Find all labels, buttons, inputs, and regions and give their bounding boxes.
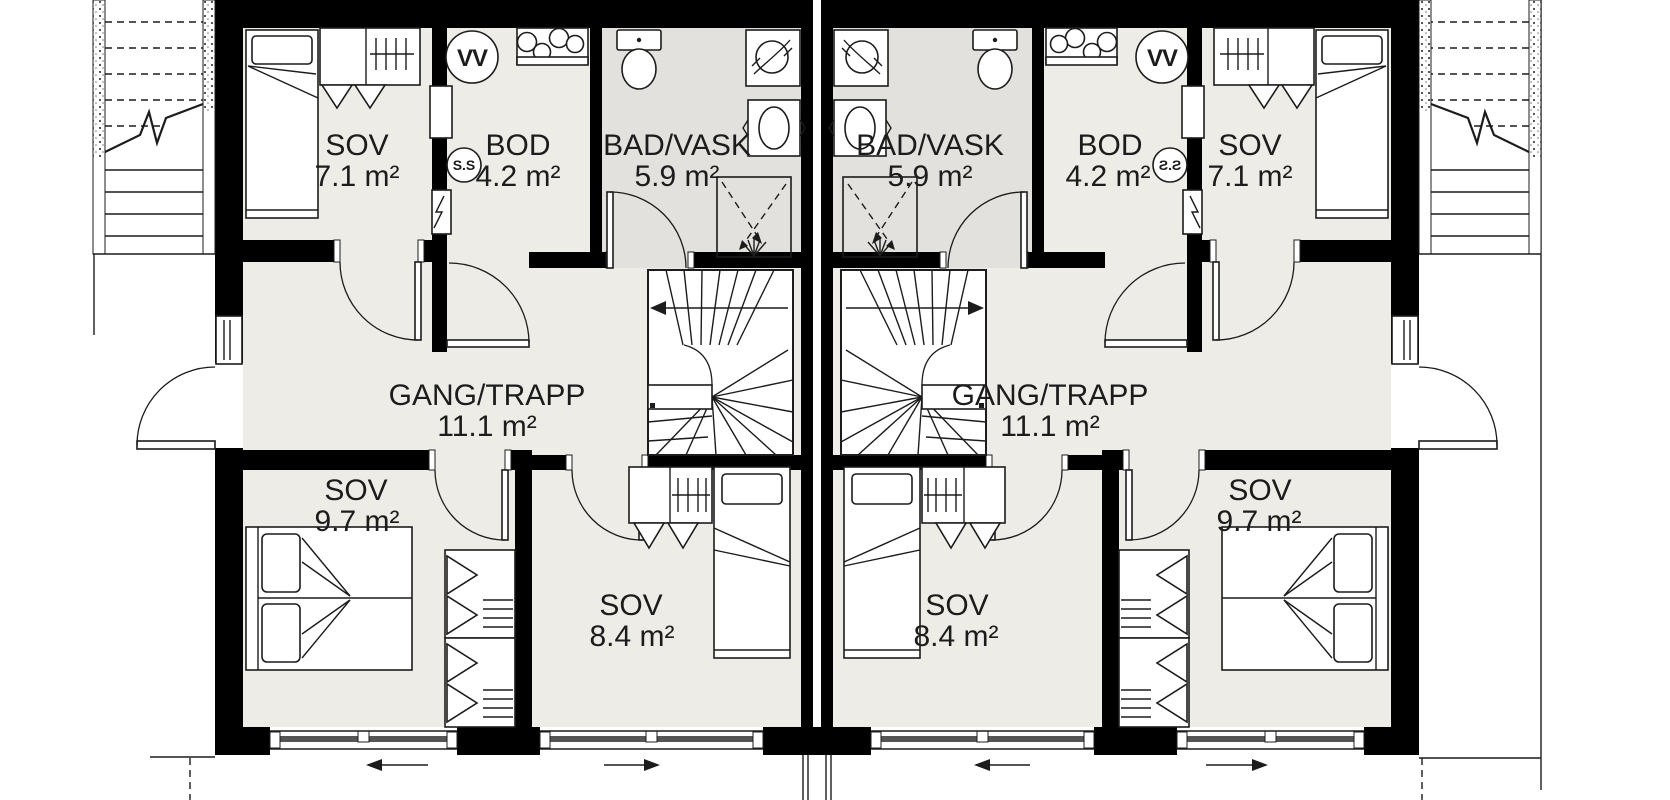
door-leaf <box>447 340 529 347</box>
room-area-sov97-left: 9.7 m² <box>314 505 399 538</box>
window-jamb <box>753 732 763 748</box>
room-label-sov97-left: SOV <box>324 474 387 507</box>
door-leaf <box>415 262 421 340</box>
window-mullion <box>358 731 369 742</box>
water-heater-label-left: VV <box>457 45 488 72</box>
floor-plan-page: SOV 7.1 m² BOD 4.2 m² BAD/VASK 5.9 m² GA… <box>0 0 1670 800</box>
single-bed-icon <box>246 30 318 218</box>
wall-under-bod <box>529 252 612 268</box>
wall-sov97-sov84 <box>515 450 532 727</box>
entry-door-opening <box>215 363 243 448</box>
door-jamb <box>429 450 435 470</box>
wall-bod-bad <box>590 28 602 268</box>
interior-stair-icon <box>648 270 793 455</box>
room-label-sov84-right: SOV <box>925 589 988 622</box>
floor-plan-svg: SOV 7.1 m² BOD 4.2 m² BAD/VASK 5.9 m² GA… <box>0 0 1670 800</box>
wardrobe-column-icon <box>445 550 515 727</box>
door-leaf <box>502 470 508 540</box>
room-area-bod-right: 4.2 m² <box>1065 160 1150 193</box>
room-label-bod-right: BOD <box>1077 129 1142 162</box>
entry-sidelight-window <box>216 316 242 364</box>
room-label-sov71-left: SOV <box>325 129 388 162</box>
party-wall-left-leaf <box>801 0 813 755</box>
door-jamb <box>688 252 694 268</box>
wall-under-sov71-a <box>215 240 340 262</box>
wall-niche <box>430 86 452 138</box>
room-label-bad-right: BAD/VASK <box>856 129 1004 162</box>
room-label-sov97-right: SOV <box>1228 474 1291 507</box>
room-area-bad-left: 5.9 m² <box>634 160 719 193</box>
single-bed-icon <box>714 467 790 658</box>
wall-gang-sov97-a <box>215 450 435 470</box>
window-jamb <box>447 732 457 748</box>
washing-machine-icon <box>743 100 805 156</box>
room-area-bod-left: 4.2 m² <box>475 160 560 193</box>
room-label-bod-left: BOD <box>485 129 550 162</box>
room-area-bad-right: 5.9 m² <box>887 160 972 193</box>
window-jamb <box>270 732 280 748</box>
room-label-sov84-left: SOV <box>599 589 662 622</box>
room-area-sov84-left: 8.4 m² <box>589 620 674 653</box>
door-jamb <box>418 240 424 262</box>
room-area-gang-right: 11.1 m² <box>1000 410 1099 443</box>
room-area-sov84-right: 8.4 m² <box>913 620 998 653</box>
door-jamb <box>566 455 572 470</box>
room-area-sov97-right: 9.7 m² <box>1216 505 1301 538</box>
double-bed-icon <box>246 527 412 670</box>
stove-icon <box>517 28 588 65</box>
door-leaf <box>607 192 613 268</box>
wall-under-bad <box>688 252 801 268</box>
sink-icon <box>746 30 800 86</box>
door-jamb <box>334 240 340 262</box>
room-area-sov71-right: 7.1 m² <box>1207 160 1292 193</box>
party-wall-gap <box>813 0 821 727</box>
room-area-gang-left: 11.1 m² <box>437 410 536 443</box>
entry-door-leaf <box>137 441 215 449</box>
window-jamb <box>540 732 550 748</box>
room-label-sov71-right: SOV <box>1218 129 1281 162</box>
room-label-bad-left: BAD/VASK <box>603 129 751 162</box>
room-area-sov71-left: 7.1 m² <box>314 160 399 193</box>
door-jamb <box>505 450 511 470</box>
party-wall-right-leaf <box>821 0 833 755</box>
fuse-box-label-right: S.S <box>1159 157 1182 173</box>
room-label-gang-right: GANG/TRAPP <box>952 379 1149 412</box>
window-mullion <box>646 731 657 742</box>
fuse-box-label-left: S.S <box>453 157 476 173</box>
room-label-gang-left: GANG/TRAPP <box>389 379 586 412</box>
water-heater-label-right: VV <box>1147 45 1178 72</box>
